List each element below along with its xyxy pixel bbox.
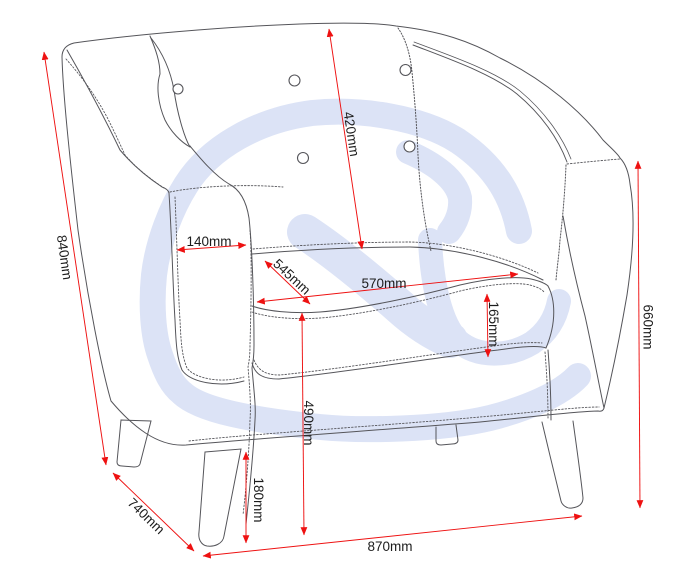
- svg-text:490mm: 490mm: [301, 400, 316, 445]
- svg-text:740mm: 740mm: [125, 495, 168, 537]
- svg-text:140mm: 140mm: [186, 234, 231, 249]
- svg-text:180mm: 180mm: [251, 477, 266, 522]
- svg-text:660mm: 660mm: [641, 304, 656, 349]
- svg-text:840mm: 840mm: [54, 234, 75, 281]
- svg-text:570mm: 570mm: [361, 276, 406, 291]
- svg-text:545mm: 545mm: [270, 256, 313, 298]
- svg-text:870mm: 870mm: [367, 539, 412, 554]
- svg-text:165mm: 165mm: [486, 301, 501, 346]
